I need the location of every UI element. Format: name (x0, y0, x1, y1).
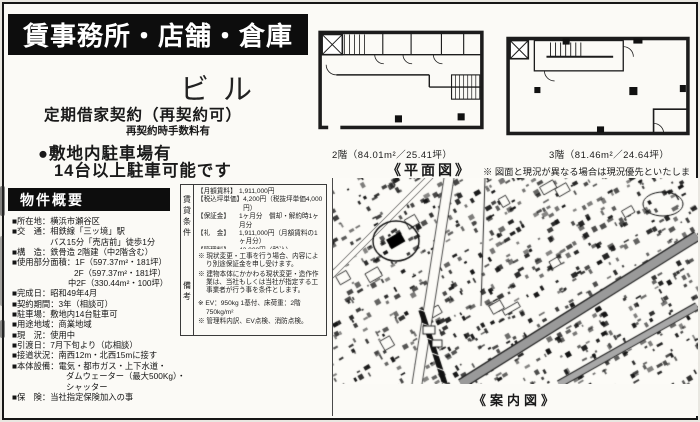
scan-artifact (0, 186, 5, 216)
row-label: 【保証金】 (197, 213, 239, 230)
rent-conditions-table: 賃貸条件 【月額賃料】 1,911,000円 【税込坪単価】 4,200円（税抜… (180, 184, 327, 250)
floorplan-section-label: 《平面図》 (387, 160, 472, 180)
overview-list: ■所在地：横浜市瀬谷区 ■交 通：相鉄線「三ッ境」駅 バス15分「売店前」徒歩1… (12, 216, 190, 402)
floorplan-3f-svg (500, 28, 696, 144)
floorplan-3f-drawing (500, 28, 696, 144)
overview-line: ■用途地域：商業地域 (12, 319, 190, 329)
remark-note: ※ 建物本体にかかわる現状変更・造作作業は、当社もしくは当社が指定する工事業者が… (198, 271, 324, 296)
area-map: 《案内図》 (332, 178, 698, 416)
remark-note: ※ 現状変更・工事を行う場合、内容により別途保証金を申し受けます。 (198, 253, 324, 270)
overview-header: 物件概要 (8, 188, 170, 211)
floorplan-2f-drawing (310, 24, 494, 146)
row-label: 【税込坪単価】 (197, 196, 243, 213)
row-value: 1ヶ月分 償却・解約時1ヶ月分 (239, 213, 324, 230)
overview-line: ■保 険：当社指定保険加入の事 (12, 392, 190, 402)
title-banner: 賃事務所・店舗・倉庫 (8, 14, 308, 55)
overview-line: ■使用部分面積：1F（597.37m²・181坪） (12, 257, 190, 267)
flyer-page: 賃事務所・店舗・倉庫 ビル 定期借家契約（再契約可） 再契約時手数料有 ●敷地内… (2, 2, 698, 420)
rental-flyer: { "colors": { "banner_bg": "#0d0d0d", "p… (0, 0, 700, 422)
table-row: 【礼 金】 1,911,000円（月額賃料の1ヶ月分） (197, 230, 324, 247)
building-name: ビル (104, 66, 266, 108)
floorplan-2f-svg (310, 24, 494, 146)
remark-note: ※ EV：950kg 1基付、床荷重：2階 750kg/m² (198, 300, 324, 317)
floorplan-2f-caption: 2階（84.01m²／25.41坪） (332, 147, 452, 161)
overview-line: ■完成日：昭和49年4月 (12, 288, 190, 298)
overview-line: ■駐車場：敷地内14台駐車可 (12, 309, 190, 319)
scan-artifact (0, 236, 4, 306)
overview-line: ■引渡日：7月下旬より（応相談） (12, 340, 190, 350)
rent-conditions-side-label: 賃貸条件 (181, 185, 194, 249)
overview-line: ■所在地：横浜市瀬谷区 (12, 216, 190, 226)
overview-line: ■本体設備：電気・都市ガス・上下水道・ (12, 361, 190, 371)
overview-line: ■契約期間：3年（相談可） (12, 299, 190, 309)
overview-line: ダムウェーター（最大500Kg）・ (12, 371, 190, 381)
overview-line: シャッター (12, 382, 190, 392)
overview-line: ■構 造：鉄骨造 2階建（中2階含む） (12, 247, 190, 257)
remarks-side-label: 備考 (181, 249, 194, 335)
row-value: 4,200円（税抜坪単価4,000円） (243, 196, 324, 213)
remarks-body: ※ 現状変更・工事を行う場合、内容により別途保証金を申し受けます。 ※ 建物本体… (194, 249, 326, 335)
table-row: 【税込坪単価】 4,200円（税抜坪単価4,000円） (197, 196, 324, 213)
overview-line: ■接道状況：南西12m・北西15mに接す (12, 350, 190, 360)
map-caption: 《案内図》 (333, 384, 698, 414)
parking-subline: 14台以上駐車可能です (54, 157, 232, 181)
row-value: 1,911,000円（月額賃料の1ヶ月分） (239, 230, 324, 247)
area-map-canvas (333, 178, 698, 384)
scan-artifact (0, 320, 5, 338)
overview-line: バス15分「売店前」徒歩1分 (12, 237, 190, 247)
contract-type: 定期借家契約（再契約可） (44, 103, 242, 125)
table-row: 【保証金】 1ヶ月分 償却・解約時1ヶ月分 (197, 213, 324, 230)
row-label: 【礼 金】 (197, 230, 239, 247)
overview-line: 中2F（330.44m²・100坪） (12, 278, 190, 288)
contract-note: 再契約時手数料有 (126, 123, 210, 138)
remarks-table: 備考 ※ 現状変更・工事を行う場合、内容により別途保証金を申し受けます。 ※ 建… (180, 249, 327, 336)
overview-line: ■交 通：相鉄線「三ッ境」駅 (12, 226, 190, 236)
overview-line: ■現 況：使用中 (12, 330, 190, 340)
page-title: 賃事務所・店舗・倉庫 (23, 16, 293, 53)
remark-note: ※ 管理料内訳、EV点検、消防点検。 (198, 318, 324, 326)
floorplan-3f-caption: 3階（81.46m²／24.64坪） (549, 147, 669, 161)
rent-conditions-body: 【月額賃料】 1,911,000円 【税込坪単価】 4,200円（税抜坪単価4,… (194, 185, 326, 249)
overview-line: 2F（597.37m²・181坪） (12, 268, 190, 278)
overview-title: 物件概要 (20, 190, 84, 210)
